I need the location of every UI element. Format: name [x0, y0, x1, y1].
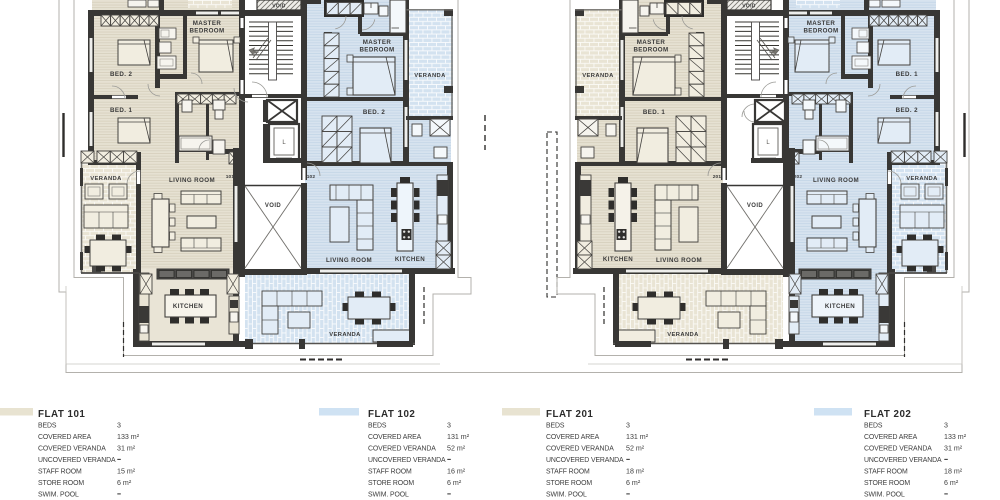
- svg-text:BEDS: BEDS: [546, 422, 565, 429]
- svg-text:SWIM. POOL: SWIM. POOL: [864, 491, 905, 498]
- svg-text:COVERED VERANDA: COVERED VERANDA: [368, 445, 436, 452]
- svg-text:UNCOVERED VERANDA: UNCOVERED VERANDA: [546, 457, 624, 464]
- svg-text:LIVING ROOM: LIVING ROOM: [326, 257, 372, 264]
- svg-text:31 m²: 31 m²: [944, 444, 963, 452]
- svg-text:133 m²: 133 m²: [944, 433, 967, 441]
- svg-text:VERANDA: VERANDA: [90, 176, 122, 182]
- svg-text:SWIM. POOL: SWIM. POOL: [368, 491, 409, 498]
- svg-text:COVERED AREA: COVERED AREA: [864, 434, 918, 441]
- svg-text:KITCHEN: KITCHEN: [395, 256, 425, 263]
- svg-text:VERANDA: VERANDA: [667, 332, 699, 338]
- svg-text:BED. 2: BED. 2: [110, 71, 133, 78]
- svg-text:KITCHEN: KITCHEN: [173, 303, 203, 310]
- svg-text:STAFF ROOM: STAFF ROOM: [368, 468, 412, 475]
- svg-text:FLAT 202: FLAT 202: [864, 409, 911, 420]
- svg-text:KITCHEN: KITCHEN: [603, 256, 633, 263]
- svg-text:VOID: VOID: [747, 203, 764, 209]
- svg-text:COVERED AREA: COVERED AREA: [38, 434, 92, 441]
- svg-text:LIVING ROOM: LIVING ROOM: [169, 177, 215, 184]
- svg-text:6 m²: 6 m²: [447, 479, 462, 487]
- svg-text:UNCOVERED VERANDA: UNCOVERED VERANDA: [38, 457, 116, 464]
- svg-text:BED. 2: BED. 2: [363, 109, 386, 116]
- svg-text:MASTER: MASTER: [363, 39, 392, 46]
- svg-text:52 m²: 52 m²: [626, 444, 645, 452]
- svg-text:18 m²: 18 m²: [626, 467, 645, 475]
- svg-text:UNCOVERED VERANDA: UNCOVERED VERANDA: [368, 457, 446, 464]
- svg-text:FLAT 101: FLAT 101: [38, 409, 85, 420]
- svg-text:STORE ROOM: STORE ROOM: [38, 480, 84, 487]
- svg-text:6 m²: 6 m²: [626, 479, 641, 487]
- svg-text:LIVING ROOM: LIVING ROOM: [813, 177, 859, 184]
- svg-text:18 m²: 18 m²: [944, 467, 963, 475]
- svg-text:COVERED VERANDA: COVERED VERANDA: [546, 445, 614, 452]
- svg-text:SWIM. POOL: SWIM. POOL: [546, 491, 587, 498]
- svg-text:52 m²: 52 m²: [447, 444, 466, 452]
- svg-text:6 m²: 6 m²: [117, 479, 132, 487]
- svg-text:VOID: VOID: [742, 4, 756, 10]
- svg-text:6 m²: 6 m²: [944, 479, 959, 487]
- svg-text:MASTER: MASTER: [193, 20, 222, 27]
- svg-text:BEDROOM: BEDROOM: [803, 28, 838, 35]
- svg-text:VERANDA: VERANDA: [582, 73, 614, 79]
- svg-text:131 m²: 131 m²: [626, 433, 649, 441]
- svg-text:FLAT 102: FLAT 102: [368, 409, 415, 420]
- svg-text:STAFF ROOM: STAFF ROOM: [38, 468, 82, 475]
- svg-text:VERANDA: VERANDA: [906, 176, 938, 182]
- svg-text:131 m²: 131 m²: [447, 433, 470, 441]
- svg-text:COVERED VERANDA: COVERED VERANDA: [864, 445, 932, 452]
- svg-text:STAFF ROOM: STAFF ROOM: [864, 468, 908, 475]
- svg-text:MASTER: MASTER: [637, 39, 666, 46]
- svg-text:VOID: VOID: [265, 203, 282, 209]
- svg-text:3: 3: [944, 421, 948, 429]
- svg-text:SWIM. POOL: SWIM. POOL: [38, 491, 79, 498]
- svg-text:BEDROOM: BEDROOM: [189, 28, 224, 35]
- svg-text:201: 201: [713, 174, 722, 180]
- svg-text:UNCOVERED VERANDA: UNCOVERED VERANDA: [864, 457, 942, 464]
- svg-text:VERANDA: VERANDA: [329, 332, 361, 338]
- svg-text:BEDROOM: BEDROOM: [359, 47, 394, 54]
- svg-text:3: 3: [447, 421, 451, 429]
- svg-text:BEDROOM: BEDROOM: [633, 47, 668, 54]
- svg-text:STORE ROOM: STORE ROOM: [368, 480, 414, 487]
- svg-text:3: 3: [117, 421, 121, 429]
- svg-text:LIVING ROOM: LIVING ROOM: [656, 257, 702, 264]
- svg-text:VOID: VOID: [272, 4, 286, 10]
- svg-text:BEDS: BEDS: [368, 422, 387, 429]
- svg-text:15 m²: 15 m²: [117, 467, 136, 475]
- svg-text:133 m²: 133 m²: [117, 433, 140, 441]
- svg-text:MASTER: MASTER: [807, 20, 836, 27]
- svg-text:16 m²: 16 m²: [447, 467, 466, 475]
- svg-text:VERANDA: VERANDA: [414, 73, 446, 79]
- svg-text:COVERED AREA: COVERED AREA: [546, 434, 600, 441]
- svg-text:BED. 1: BED. 1: [896, 71, 919, 78]
- svg-text:FLAT 201: FLAT 201: [546, 409, 593, 420]
- svg-text:202: 202: [794, 174, 803, 180]
- svg-text:BEDS: BEDS: [38, 422, 57, 429]
- svg-text:COVERED AREA: COVERED AREA: [368, 434, 422, 441]
- svg-text:101: 101: [226, 174, 235, 180]
- svg-text:102: 102: [307, 174, 316, 180]
- svg-text:BED. 1: BED. 1: [110, 107, 133, 114]
- svg-text:31 m²: 31 m²: [117, 444, 136, 452]
- svg-text:BED. 1: BED. 1: [643, 109, 666, 116]
- svg-text:COVERED VERANDA: COVERED VERANDA: [38, 445, 106, 452]
- svg-text:STAFF ROOM: STAFF ROOM: [546, 468, 590, 475]
- svg-text:KITCHEN: KITCHEN: [825, 303, 855, 310]
- svg-text:BED. 2: BED. 2: [896, 107, 919, 114]
- svg-text:3: 3: [626, 421, 630, 429]
- svg-text:BEDS: BEDS: [864, 422, 883, 429]
- svg-text:STORE ROOM: STORE ROOM: [864, 480, 910, 487]
- svg-text:STORE ROOM: STORE ROOM: [546, 480, 592, 487]
